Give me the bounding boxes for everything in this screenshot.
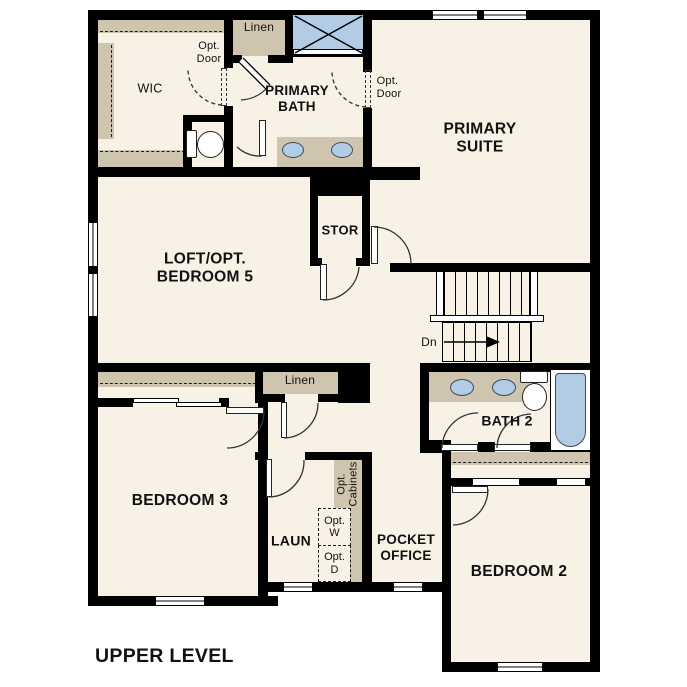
toilet-fixture-bath2 [522,383,547,411]
door-leaf [441,444,478,451]
shelf-dash [453,462,588,463]
bathtub-basin [555,373,586,447]
wall [363,167,420,180]
sink-fixture [492,379,516,396]
wall [305,452,370,460]
window [88,273,98,317]
room-label-primary-suite: PRIMARY SUITE [443,121,516,158]
door-leaf [320,264,327,300]
shelf-dash [100,383,256,384]
wall [88,398,133,407]
annotation-opt-door-suite: Opt. Door [377,75,402,101]
wall [338,363,370,403]
door-leaf [266,459,272,497]
door-leaf [371,226,378,264]
stair-rail [530,266,538,318]
shelf-dash [111,45,112,137]
room-label-laundry: LAUN [271,533,311,550]
wall [356,258,370,266]
wall [420,363,429,452]
room-label-wic: WIC [138,82,163,97]
window [432,10,478,20]
shelf-dash [100,151,185,152]
opt-dryer-box: Opt. D [318,545,351,582]
wall [255,367,263,403]
wall [390,263,600,272]
page-title: UPPER LEVEL [95,645,234,668]
window [497,662,543,672]
window [88,222,98,267]
door-leaf [452,486,488,493]
wall [586,478,592,486]
wall [310,172,370,196]
wall [318,394,338,402]
door-leaf [259,120,266,156]
window [393,582,423,592]
wall [520,478,556,486]
wall [442,440,451,672]
stair-rail [436,266,444,318]
closet-slider [176,402,222,407]
room-label-pocket-office: POCKET OFFICE [377,532,435,564]
bedroom2-closet-shelf [451,452,590,465]
optional-door-leaf [221,68,227,106]
wall [310,196,318,266]
wall [263,394,285,402]
opt-washer-label: Opt. W [324,515,345,539]
door-leaf [226,407,264,414]
wall [478,442,495,452]
floor-bedroom3 [88,455,268,603]
room-label-bedroom2: BEDROOM 2 [471,563,568,581]
window [155,596,205,606]
closet-label-linen-top: Linen [244,20,274,34]
stair-upper-run [444,270,530,318]
room-label-primary-bath: PRIMARY BATH [265,83,329,115]
shelf-dash [100,31,222,32]
annotation-opt-cabinets: Opt. Cabinets [336,461,359,506]
sink-fixture [282,142,304,158]
door-leaf [281,402,287,438]
toilet-fixture-primary [186,130,197,158]
wall [255,452,265,460]
wall [590,10,600,672]
annotation-opt-door-wic: Opt. Door [197,40,222,66]
closet-label-linen-hall: Linen [285,373,315,387]
stair-lower-run [442,322,532,362]
stair-landing [430,315,544,322]
optional-door-leaf [365,70,371,108]
wall [451,478,472,486]
room-label-bedroom3: BEDROOM 3 [132,492,229,510]
annotation-stairs-down: Dn [421,335,437,349]
wall [258,398,268,596]
room-label-stor: STOR [321,222,358,237]
closet-slider [556,478,586,486]
window [483,10,527,20]
toilet-fixture-primary [197,131,224,158]
wall [362,196,370,266]
door-leaf [494,444,531,451]
sink-fixture [331,142,353,158]
bedroom3-closet-shelf [98,372,258,387]
shower-glass [293,49,363,55]
wall [224,55,242,63]
wall [362,452,372,592]
laundry-side-counter [350,508,362,582]
room-label-loft: LOFT/OPT. BEDROOM 5 [157,251,254,288]
closet-slider [133,398,179,403]
wic-bottom-shelf [98,150,185,167]
wall [88,363,370,372]
wall [183,115,228,122]
room-label-bath2: BATH 2 [481,413,532,430]
closet-slider [472,478,520,486]
window [283,582,313,592]
sink-fixture [450,379,474,396]
opt-washer-box: Opt. W [318,508,351,546]
floor-plan: Opt. W Opt. D WIC Lin [0,0,687,687]
toilet-fixture-bath2 [520,371,548,383]
wall [268,55,293,63]
opt-dryer-label: Opt. D [324,551,345,575]
